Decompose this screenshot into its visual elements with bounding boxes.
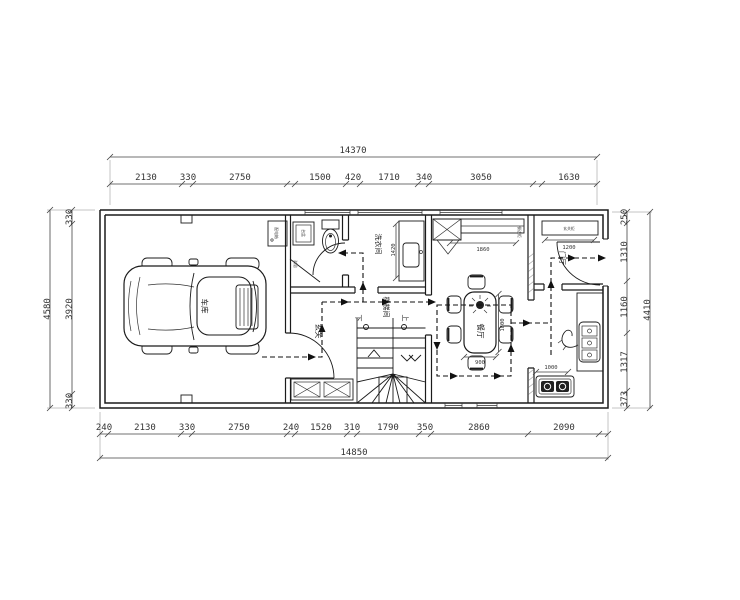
dim-left-total: 4580	[43, 298, 53, 320]
dim-strip-bottom-total: 14850	[97, 448, 611, 461]
dim-bottom-seg-2: 330	[179, 423, 195, 433]
stair-label-up: 上	[401, 315, 410, 322]
dim-top-seg-8: 1630	[558, 173, 580, 183]
electrical-box-label: 配电箱	[274, 227, 279, 239]
dim-sideboard: 1860	[476, 247, 489, 253]
dim-bottom-total: 14850	[340, 448, 367, 458]
dim-strip-top-segments: 2130 330 2750 1500 420 1710 340 3050 163…	[107, 173, 600, 187]
staircase: 下 上 楼梯间	[354, 297, 426, 404]
kitchen-counter	[577, 293, 603, 371]
dim-strip-left: 330 3920 330 4580	[43, 207, 75, 411]
dim-strip-bottom-segments: 240 2130 330 2750 240 1520 310 1790 350 …	[96, 423, 611, 437]
laundry-sink	[403, 243, 419, 267]
dim-laundry-counter: 1420	[391, 243, 397, 256]
dim-top-seg-3: 1500	[309, 173, 331, 183]
kitchen: 1000	[533, 293, 603, 397]
bathroom: 台盆 淋浴	[290, 220, 339, 282]
dim-right-total: 4410	[643, 299, 653, 321]
toilet-bowl	[323, 229, 339, 253]
dim-right-seg-0: 250	[620, 209, 630, 225]
floor-plan-canvas: 14370 2130 330 2750 1500 420 1710 340 30…	[0, 0, 740, 600]
toilet-tank	[322, 220, 339, 229]
room-label-garage: 车库	[200, 299, 210, 314]
dim-top-seg-0: 2130	[135, 173, 157, 183]
foyer-cabinet-label: 玄关柜	[563, 226, 575, 231]
car: 车库	[124, 258, 266, 354]
dim-right-seg-2: 1160	[620, 296, 630, 318]
room-label-laundry: 洗衣间	[374, 234, 383, 255]
dim-bottom-seg-8: 350	[417, 423, 433, 433]
doors	[289, 242, 600, 378]
dim-strip-right: 250 1310 1160 1317 373 4410	[620, 209, 653, 411]
dim-bottom-seg-5: 1520	[310, 423, 332, 433]
floor-plan-drawing: 14370 2130 330 2750 1500 420 1710 340 30…	[0, 0, 740, 600]
stair-label-down: 下	[354, 315, 362, 322]
dim-table-length: 1800	[500, 318, 506, 331]
stove	[536, 376, 574, 397]
dim-bottom-seg-9: 2860	[468, 423, 490, 433]
dim-strip-top-total: 14370	[107, 146, 600, 160]
dim-left-seg-0: 330	[65, 209, 75, 225]
dim-bottom-seg-4: 240	[283, 423, 299, 433]
dim-bottom-seg-7: 1790	[377, 423, 399, 433]
shower-label: 淋浴	[293, 260, 298, 268]
dim-right-seg-4: 373	[620, 391, 630, 407]
dim-kitchen-counter: 1000	[544, 365, 557, 371]
dim-top-seg-6: 340	[416, 173, 432, 183]
stair-arrow-up-mark	[368, 350, 380, 357]
dim-top-seg-1: 330	[180, 173, 196, 183]
dim-bottom-seg-1: 2130	[134, 423, 156, 433]
bathroom-door	[313, 243, 345, 275]
dim-bottom-seg-0: 240	[96, 423, 112, 433]
dim-left-seg-2: 330	[65, 393, 75, 409]
dim-bottom-seg-6: 310	[344, 423, 360, 433]
room-label-dining: 餐厅	[476, 324, 485, 339]
laundry-room: 1420 洗衣间	[374, 221, 424, 281]
dim-left-seg-1: 3920	[65, 298, 75, 320]
dim-top-seg-2: 2750	[229, 173, 251, 183]
dim-right-seg-1: 1310	[620, 241, 630, 263]
dim-top-seg-4: 420	[345, 173, 361, 183]
dim-bottom-seg-10: 2090	[553, 423, 575, 433]
stair-arrow-down-mark	[401, 355, 421, 361]
faucet	[562, 330, 578, 347]
dim-top-total: 14370	[339, 146, 366, 156]
pilaster-bottom	[181, 395, 192, 403]
dim-top-seg-5: 1710	[378, 173, 400, 183]
dim-table-width: 900	[475, 360, 485, 366]
interior-walls	[286, 215, 604, 403]
electrical-box: 配电箱	[268, 221, 287, 246]
basin-label: 台盆	[301, 229, 306, 237]
dim-top-seg-7: 3050	[470, 173, 492, 183]
pilaster-top	[181, 215, 192, 223]
sideboard-label: 餐边柜	[517, 226, 522, 238]
dim-bottom-seg-3: 2750	[228, 423, 250, 433]
dim-right-seg-3: 1317	[620, 351, 630, 373]
